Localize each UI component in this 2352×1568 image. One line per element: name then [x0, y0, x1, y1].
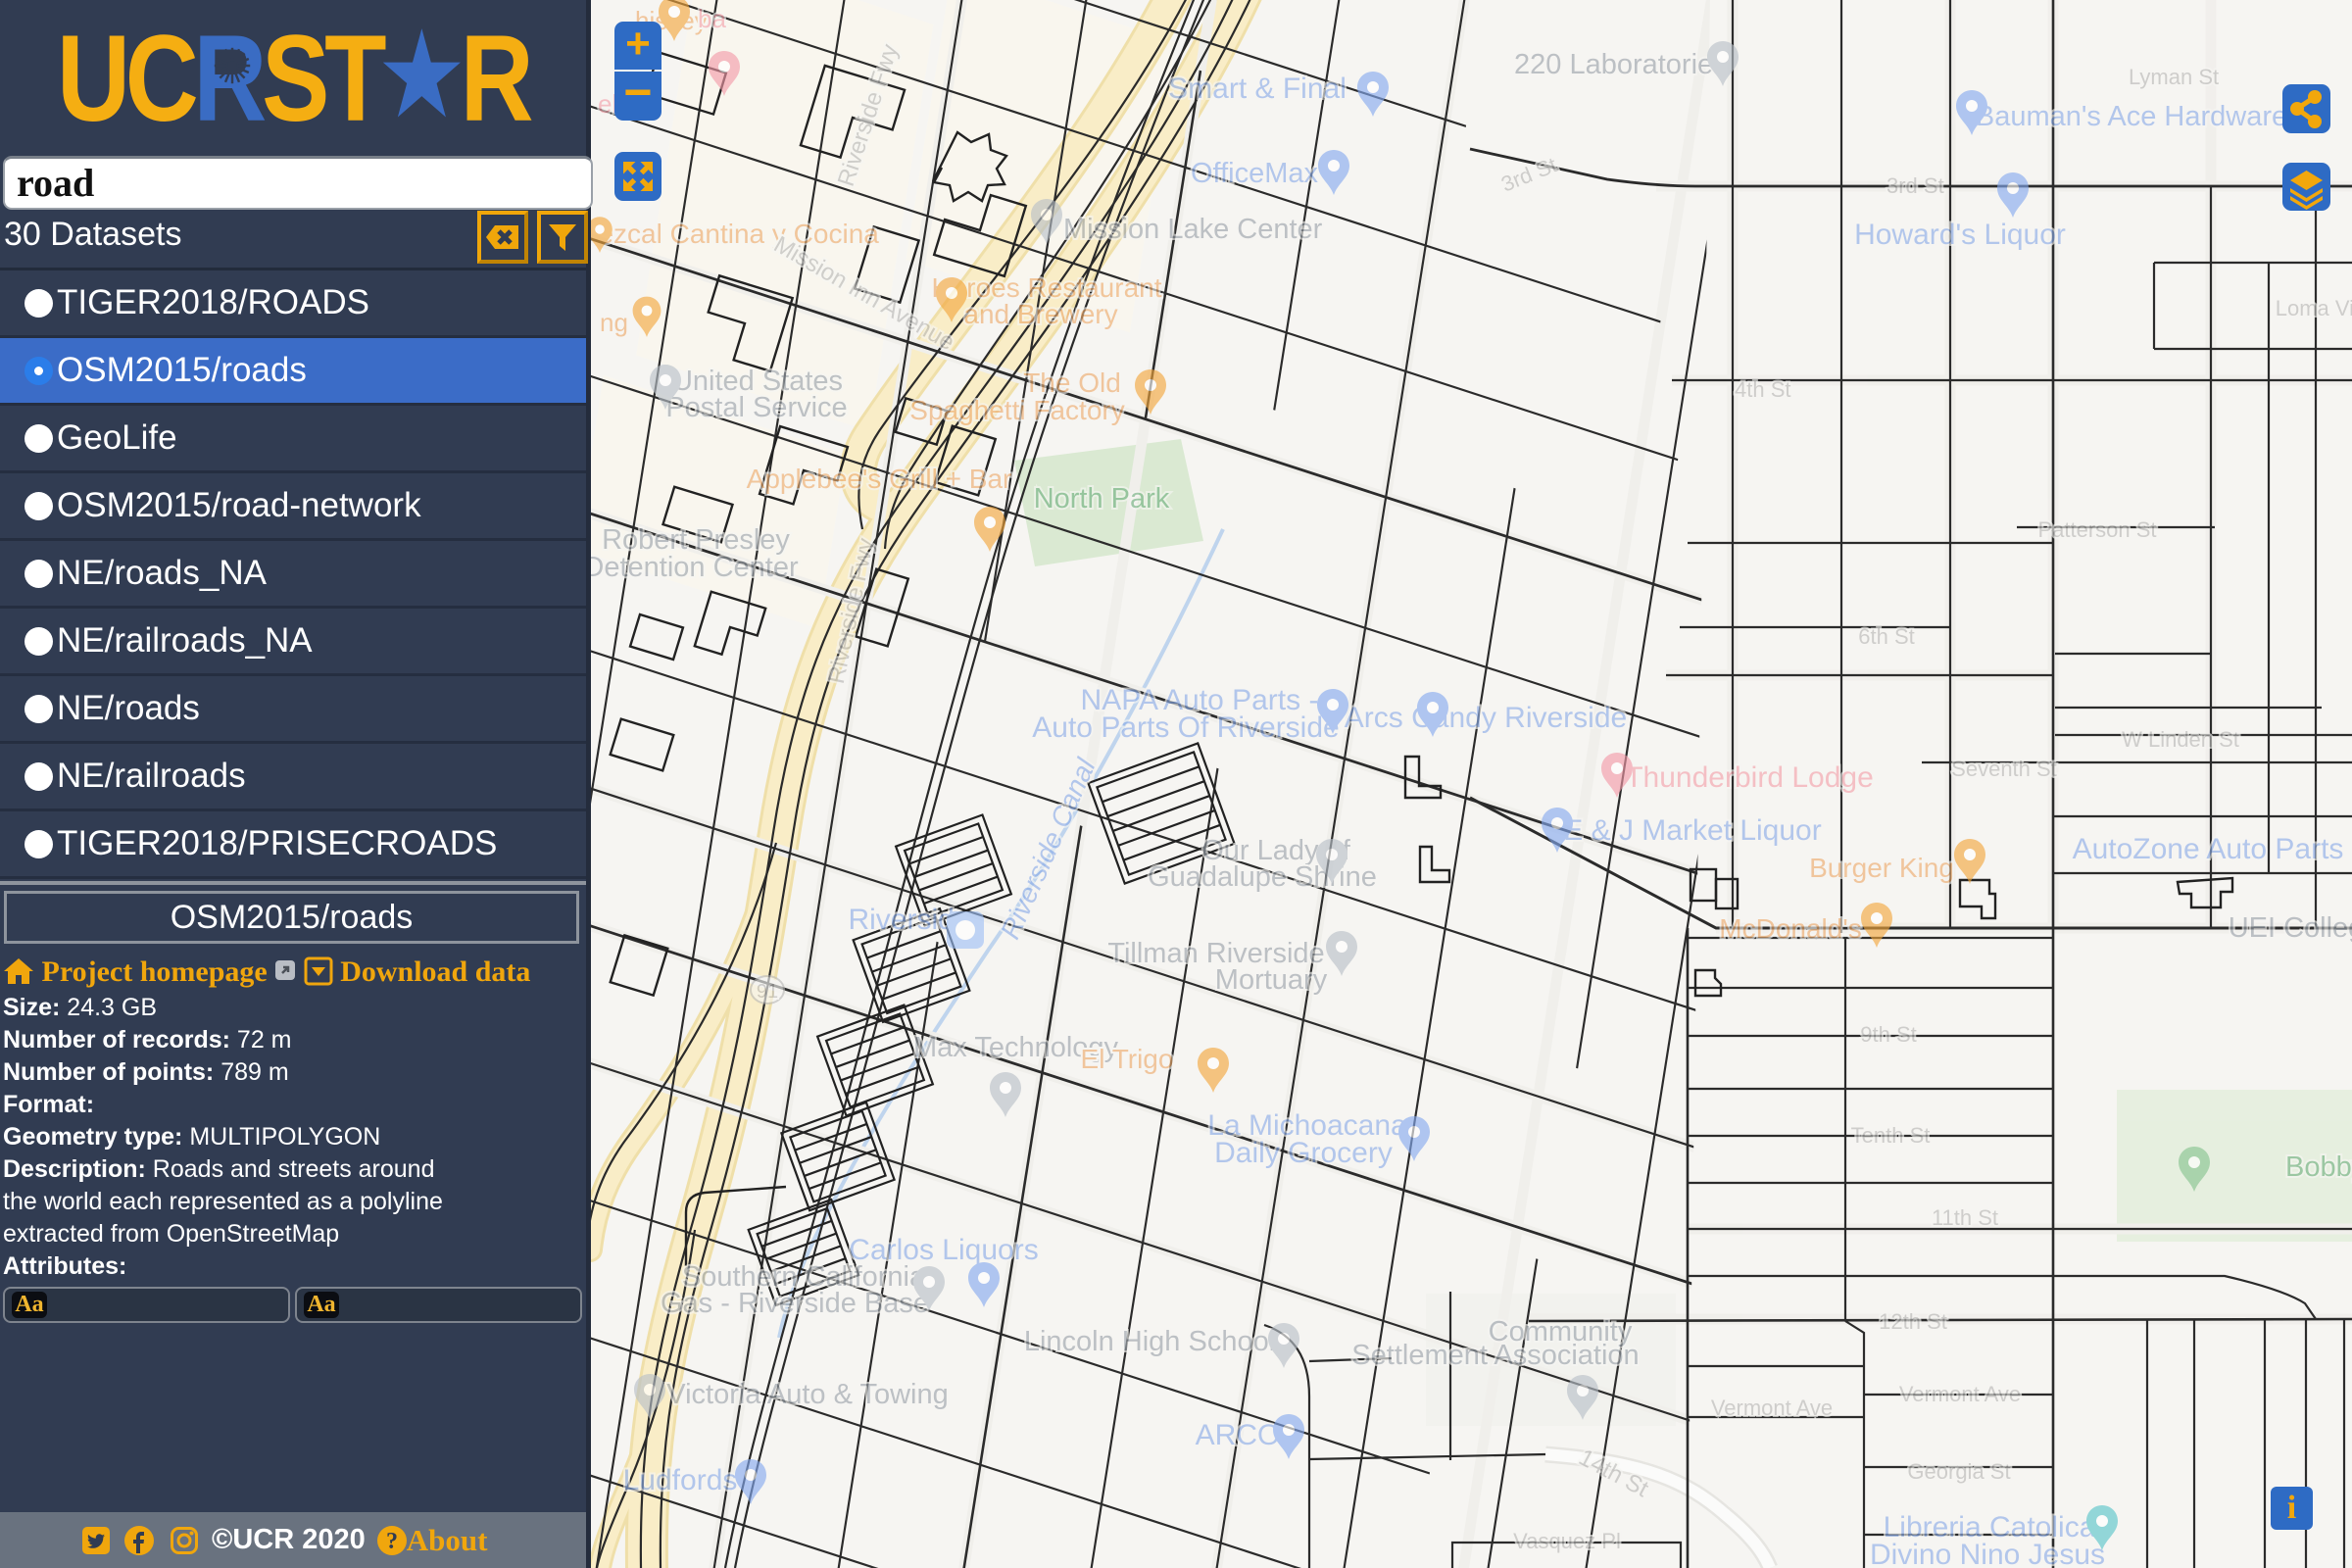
svg-text:E & J Market Liquor: E & J Market Liquor [1563, 814, 1821, 847]
svg-text:Detention Center: Detention Center [583, 552, 799, 583]
svg-text:Vasquez Pl: Vasquez Pl [1513, 1529, 1621, 1553]
svg-text:OfficeMax: OfficeMax [1191, 158, 1319, 189]
svg-text:Auto Parts Of Riverside: Auto Parts Of Riverside [1032, 711, 1339, 744]
svg-text:Divino Nino Jesus: Divino Nino Jesus [1870, 1539, 2105, 1568]
svg-text:Mortuary: Mortuary [1215, 964, 1328, 996]
svg-text:El Trigo: El Trigo [1081, 1044, 1174, 1074]
svg-text:Patterson St: Patterson St [2037, 517, 2156, 542]
svg-text:Ludfords: Ludfords [623, 1464, 738, 1496]
svg-text:91: 91 [757, 981, 778, 1003]
svg-text:11th St: 11th St [1932, 1205, 1998, 1230]
svg-text:Arcs Candy Riverside: Arcs Candy Riverside [1345, 702, 1627, 734]
svg-text:The Old: The Old [1023, 367, 1121, 398]
svg-text:W Linden St: W Linden St [2122, 727, 2239, 752]
svg-text:ba: ba [698, 4, 726, 33]
svg-text:Seventh St: Seventh St [1951, 757, 2057, 781]
svg-text:Georgia St: Georgia St [1907, 1459, 2010, 1484]
svg-text:Howard's Liquor: Howard's Liquor [1854, 219, 2066, 251]
svg-text:Vermont Ave: Vermont Ave [1711, 1396, 1833, 1420]
svg-text:Lyman St: Lyman St [2129, 65, 2219, 89]
svg-text:Burger King: Burger King [1809, 853, 1954, 883]
svg-text:Lincoln High School: Lincoln High School [1024, 1326, 1275, 1357]
svg-text:9th St: 9th St [1860, 1022, 1916, 1047]
svg-text:Smart & Final: Smart & Final [1168, 73, 1347, 105]
svg-text:6th St: 6th St [1858, 624, 1914, 649]
svg-text:UEI Colleg: UEI Colleg [2229, 912, 2352, 944]
svg-text:12th St: 12th St [1879, 1309, 1947, 1334]
svg-text:Tenth St: Tenth St [1851, 1123, 1931, 1148]
svg-text:Bobby Bond: Bobby Bond [2285, 1151, 2352, 1183]
svg-text:Vermont Ave: Vermont Ave [1899, 1382, 2021, 1406]
svg-text:Loma Vista St: Loma Vista St [2276, 296, 2352, 320]
svg-text:Daily Grocery: Daily Grocery [1214, 1137, 1393, 1169]
svg-text:Mission Lake Center: Mission Lake Center [1063, 214, 1323, 245]
svg-text:4th St: 4th St [1735, 377, 1790, 402]
svg-text:3rd St: 3rd St [1886, 173, 1944, 198]
svg-text:Victoria Auto & Towing: Victoria Auto & Towing [666, 1379, 949, 1410]
svg-text:North Park: North Park [1034, 483, 1170, 514]
svg-text:220 Laboratories: 220 Laboratories [1514, 49, 1728, 80]
svg-text:Settlement Association: Settlement Association [1351, 1340, 1639, 1371]
svg-text:Bauman's Ace Hardware: Bauman's Ace Hardware [1976, 101, 2287, 132]
svg-text:ng: ng [600, 308, 628, 337]
svg-text:Postal Service: Postal Service [665, 392, 847, 423]
svg-text:Gas - Riverside Base: Gas - Riverside Base [661, 1288, 929, 1319]
svg-text:ARCO: ARCO [1196, 1419, 1281, 1451]
svg-text:Applebee's Grill + Bar: Applebee's Grill + Bar [747, 464, 1012, 494]
svg-text:Spaghetti Factory: Spaghetti Factory [909, 395, 1124, 425]
svg-text:AutoZone Auto Parts: AutoZone Auto Parts [2073, 833, 2344, 865]
svg-text:Mezcal Cantina y Cocina: Mezcal Cantina y Cocina [575, 219, 879, 249]
svg-text:McDonald's: McDonald's [1719, 913, 1861, 944]
svg-text:Thunderbird Lodge: Thunderbird Lodge [1625, 761, 1874, 794]
svg-text:and Brewery: and Brewery [963, 299, 1117, 329]
svg-text:?: ? [386, 1529, 398, 1554]
